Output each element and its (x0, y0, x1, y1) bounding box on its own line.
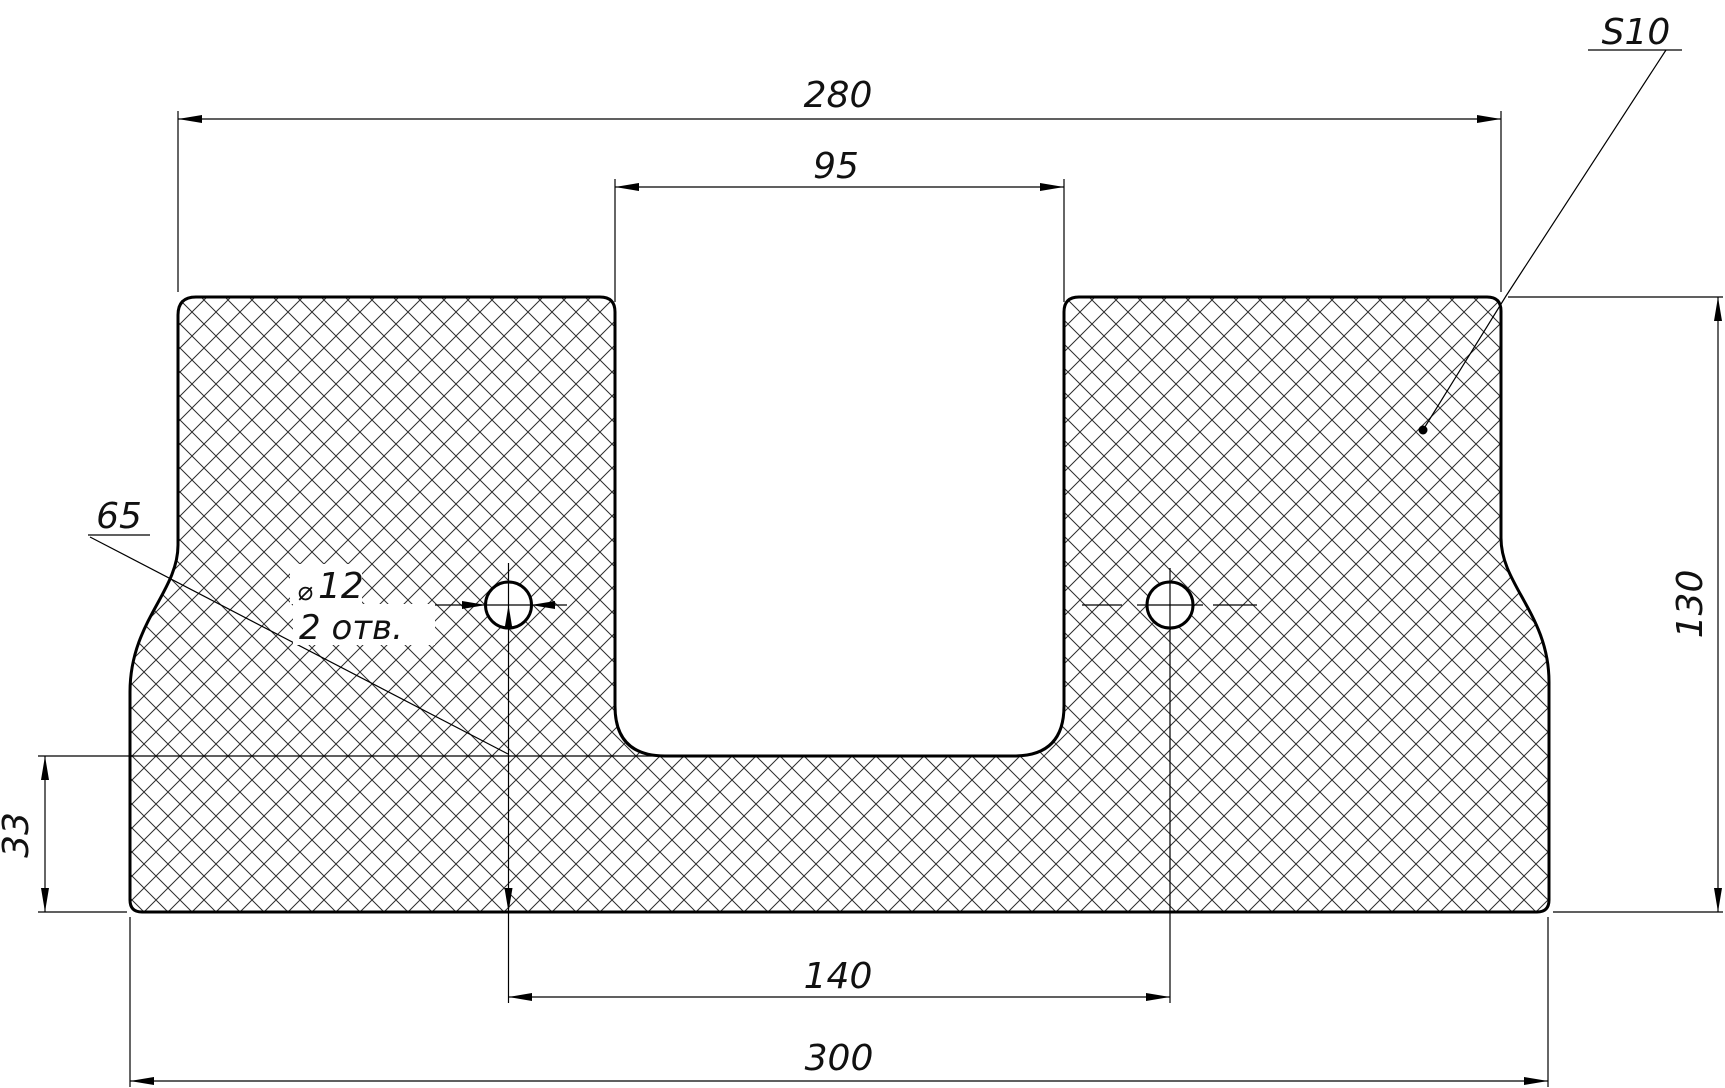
dimension-95: 95 (615, 146, 1064, 302)
drawing-canvas: 280 95 130 33 140 300 (0, 0, 1725, 1088)
hole-dia-label: 12 (318, 566, 364, 607)
dim-280-label: 280 (804, 75, 873, 116)
dimension-300: 300 (130, 917, 1548, 1087)
drawing-sheet: 280 95 130 33 140 300 (0, 0, 1725, 1088)
dim-33-label: 33 (0, 812, 37, 858)
hole-count-label: 2 отв. (299, 608, 403, 648)
arrow-left-icon (509, 993, 533, 1001)
note-s10-label: S10 (1602, 12, 1671, 53)
arrow-right-icon (1040, 183, 1064, 191)
arrow-right-icon (1146, 993, 1170, 1001)
dim-130-label: 130 (1670, 570, 1711, 639)
dim-65-label: 65 (96, 496, 142, 537)
arrow-up-icon (41, 756, 49, 780)
dim-300-label: 300 (805, 1038, 874, 1079)
dim-95-label: 95 (813, 146, 859, 187)
arrow-left-icon (130, 1077, 154, 1085)
arrow-down-icon (1714, 888, 1722, 912)
diameter-symbol: ⌀ (297, 577, 313, 607)
arrow-left-icon (178, 115, 202, 123)
arrow-up-icon (1714, 297, 1722, 321)
leader-dot-icon (1419, 426, 1428, 435)
dimension-140: 140 (509, 956, 1171, 1001)
arrow-right-icon (1477, 115, 1501, 123)
arrow-right-icon (1524, 1077, 1548, 1085)
dim-140-label: 140 (804, 956, 873, 997)
arrow-down-icon (41, 888, 49, 912)
arrow-left-icon (615, 183, 639, 191)
